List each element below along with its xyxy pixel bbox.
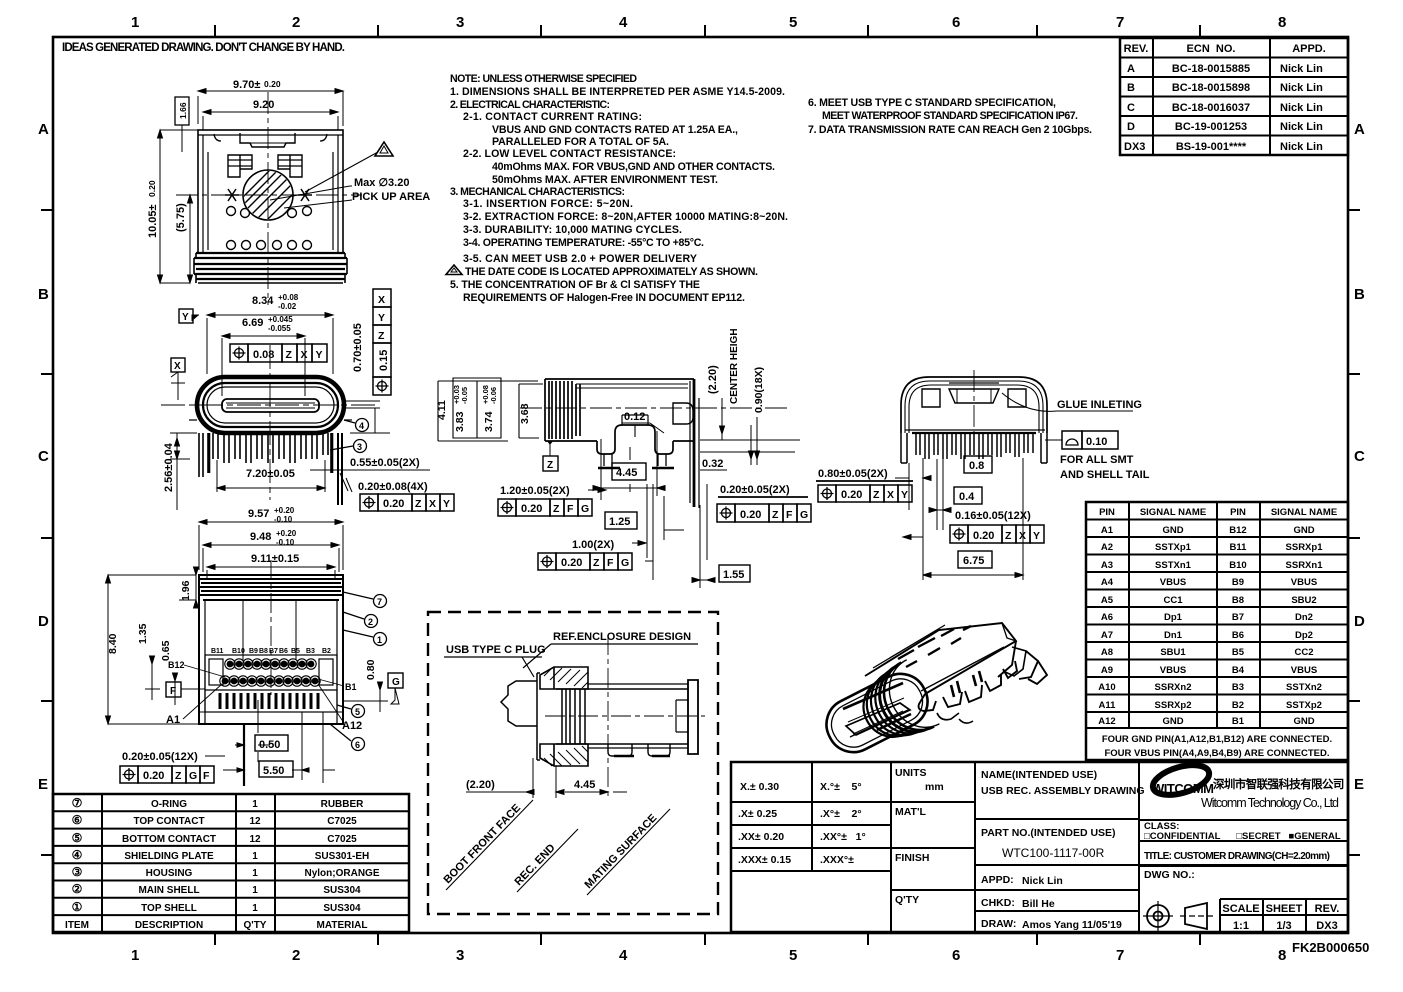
svg-text:0.20: 0.20: [264, 79, 281, 89]
svg-text:VBUS AND GND CONTACTS RATED AT: VBUS AND GND CONTACTS RATED AT 1.25A EA.…: [492, 124, 738, 136]
svg-text:B10: B10: [232, 648, 245, 655]
svg-text:0.20: 0.20: [561, 557, 582, 569]
svg-text:⑦: ⑦: [72, 796, 83, 810]
svg-text:A: A: [1354, 121, 1365, 138]
svg-text:.XXX± 0.15: .XXX± 0.15: [738, 854, 791, 866]
svg-text:9.20: 9.20: [253, 99, 274, 111]
svg-text:B8: B8: [259, 648, 268, 655]
svg-text:GND: GND: [1162, 525, 1183, 536]
svg-text:X: X: [887, 489, 894, 501]
svg-text:F: F: [567, 503, 574, 515]
svg-text:SBU2: SBU2: [1291, 595, 1316, 606]
svg-text:0.90(18X): 0.90(18X): [753, 367, 765, 413]
svg-text:MAIN SHELL: MAIN SHELL: [138, 885, 199, 896]
svg-text:NAME(INTENDED USE): NAME(INTENDED USE): [981, 769, 1097, 781]
svg-text:50mOhms MAX. AFTER ENVIRONMENT: 50mOhms MAX. AFTER ENVIRONMENT TEST.: [492, 174, 718, 186]
svg-text:B2: B2: [1232, 700, 1244, 711]
svg-text:0.70±0.05: 0.70±0.05: [352, 323, 364, 372]
svg-text:SBU1: SBU1: [1160, 647, 1186, 658]
svg-text:Z: Z: [772, 509, 779, 521]
svg-text:ECN NO.: ECN NO.: [1187, 43, 1236, 55]
svg-text:A4: A4: [1101, 577, 1114, 588]
svg-text:B9: B9: [249, 648, 258, 655]
svg-text:Y: Y: [1033, 530, 1040, 542]
svg-text:4: 4: [619, 947, 628, 964]
svg-text:A6: A6: [1101, 612, 1113, 623]
svg-text:8: 8: [1278, 14, 1286, 31]
svg-text:2-2. LOW LEVEL CONTACT RESISTA: 2-2. LOW LEVEL CONTACT RESISTANCE:: [463, 148, 676, 160]
svg-text:Z: Z: [415, 498, 422, 510]
svg-text:+0.20: +0.20: [276, 529, 297, 538]
svg-text:B11: B11: [211, 648, 224, 655]
svg-text:C: C: [1127, 102, 1135, 114]
svg-text:SHIELDING PLATE: SHIELDING PLATE: [124, 851, 214, 862]
svg-text:Dn2: Dn2: [1295, 612, 1313, 623]
svg-text:-0.06: -0.06: [489, 387, 498, 404]
svg-text:③: ③: [72, 865, 83, 879]
svg-text:BC-18-0016037: BC-18-0016037: [1172, 102, 1250, 114]
svg-text:CENTER HEIGH: CENTER HEIGH: [729, 328, 740, 404]
svg-text:FK2B000650: FK2B000650: [1292, 940, 1369, 955]
svg-text:0.20: 0.20: [740, 509, 761, 521]
svg-text:TOP CONTACT: TOP CONTACT: [133, 816, 204, 827]
svg-text:1: 1: [252, 903, 258, 914]
svg-text:3-2. EXTRACTION FORCE: 8~20N,A: 3-2. EXTRACTION FORCE: 8~20N,AFTER 10000…: [463, 211, 788, 223]
svg-text:1/3: 1/3: [1276, 920, 1291, 932]
svg-text:GND: GND: [1293, 525, 1314, 536]
svg-text:8.34: 8.34: [252, 295, 274, 307]
svg-text:10.05±: 10.05±: [147, 204, 159, 238]
svg-text:B5: B5: [291, 648, 300, 655]
svg-text:SHEET: SHEET: [1266, 903, 1303, 915]
svg-text:AND SHELL TAIL: AND SHELL TAIL: [1060, 469, 1150, 481]
svg-text:PIN: PIN: [1099, 507, 1115, 518]
svg-text:C: C: [1354, 448, 1365, 465]
svg-text:E: E: [1354, 776, 1364, 793]
svg-text:3.74: 3.74: [483, 411, 495, 432]
svg-text:12: 12: [249, 816, 261, 827]
svg-text:9.57: 9.57: [248, 508, 269, 520]
svg-text:9.70±: 9.70±: [233, 79, 260, 91]
svg-text:FINISH: FINISH: [895, 852, 929, 864]
svg-text:X: X: [174, 361, 181, 372]
svg-text:X: X: [301, 349, 308, 361]
svg-text:CC2: CC2: [1294, 647, 1313, 658]
svg-text:(2.20): (2.20): [707, 365, 719, 394]
svg-text:6: 6: [952, 947, 960, 964]
svg-text:B1: B1: [345, 682, 357, 692]
svg-text:7: 7: [1116, 14, 1124, 31]
svg-text:5.50: 5.50: [263, 765, 284, 777]
svg-text:0.80: 0.80: [365, 659, 377, 680]
svg-text:1: 1: [131, 947, 139, 964]
svg-text:1. DIMENSIONS SHALL BE INTERPR: 1. DIMENSIONS SHALL BE INTERPRETED PER A…: [450, 86, 785, 98]
svg-text:B6: B6: [1232, 630, 1244, 641]
svg-text:D: D: [1127, 121, 1135, 133]
svg-text:0.55±0.05(2X): 0.55±0.05(2X): [350, 457, 420, 469]
svg-text:9.48: 9.48: [250, 531, 271, 543]
svg-text:FOUR GND PIN(A1,A12,B1,B12) AR: FOUR GND PIN(A1,A12,B1,B12) ARE CONNECTE…: [1102, 734, 1332, 745]
svg-text:Z: Z: [378, 330, 385, 342]
svg-text:B1: B1: [1232, 716, 1245, 727]
svg-text:VBUS: VBUS: [1291, 665, 1317, 676]
svg-text:PIN: PIN: [1230, 507, 1246, 518]
svg-text:0.08: 0.08: [253, 349, 274, 361]
svg-text:SSTXn1: SSTXn1: [1155, 560, 1192, 571]
svg-text:A5: A5: [1101, 595, 1114, 606]
svg-text:5: 5: [355, 707, 360, 717]
svg-text:DWG NO.:: DWG NO.:: [1144, 869, 1195, 881]
svg-text:SSTXn2: SSTXn2: [1286, 682, 1322, 693]
svg-text:B7: B7: [269, 648, 278, 655]
svg-text:APPD.: APPD.: [1292, 43, 1326, 55]
svg-text:Witcomm Technology Co., Ltd: Witcomm Technology Co., Ltd: [1201, 796, 1339, 810]
svg-text:.X± 0.25: .X± 0.25: [738, 808, 777, 820]
svg-text:A12: A12: [342, 720, 362, 732]
svg-text:A: A: [1127, 63, 1135, 75]
svg-text:Z: Z: [553, 503, 560, 515]
svg-text:6. MEET USB TYPE C STANDARD SP: 6. MEET USB TYPE C STANDARD SPECIFICATIO…: [808, 97, 1056, 109]
svg-text:X: X: [1019, 530, 1026, 542]
svg-text:BC-19-001253: BC-19-001253: [1175, 121, 1247, 133]
svg-text:O-RING: O-RING: [151, 799, 187, 810]
svg-text:SCALE: SCALE: [1222, 903, 1259, 915]
svg-text:Nylon;ORANGE: Nylon;ORANGE: [305, 868, 380, 879]
svg-text:3.83: 3.83: [454, 411, 466, 432]
svg-text:-0.055: -0.055: [268, 324, 291, 333]
svg-text:-0.02: -0.02: [278, 302, 297, 311]
svg-text:4.45: 4.45: [574, 779, 595, 791]
svg-text:3: 3: [456, 14, 464, 31]
svg-text:B10: B10: [1229, 560, 1246, 571]
svg-text:X: X: [429, 498, 436, 510]
svg-text:⑥: ⑥: [72, 813, 83, 827]
svg-text:1.35: 1.35: [137, 623, 149, 644]
svg-text:①: ①: [72, 900, 83, 914]
svg-text:Nick Lin: Nick Lin: [1022, 875, 1063, 887]
svg-text:F: F: [170, 686, 176, 697]
svg-text:PARALLELED FOR A TOTAL OF 5A.: PARALLELED FOR A TOTAL OF 5A.: [492, 136, 669, 148]
svg-text:Q'TY: Q'TY: [895, 894, 919, 906]
svg-text:-0.10: -0.10: [276, 538, 295, 547]
svg-text:Bill He: Bill He: [1022, 898, 1055, 910]
svg-text:HOUSING: HOUSING: [146, 868, 193, 879]
svg-text:Y: Y: [901, 489, 908, 501]
svg-text:X: X: [378, 294, 385, 306]
svg-text:Z: Z: [593, 557, 600, 569]
svg-text:A11: A11: [1099, 700, 1117, 711]
svg-text:1: 1: [252, 799, 258, 810]
svg-text:B11: B11: [1230, 542, 1248, 553]
svg-text:+0.08: +0.08: [278, 293, 299, 302]
svg-text:2-1. CONTACT CURRENT RATING:: 2-1. CONTACT CURRENT RATING:: [463, 111, 642, 123]
svg-text:Q'TY: Q'TY: [244, 920, 267, 931]
svg-text:VBUS: VBUS: [1160, 665, 1186, 676]
svg-text:.XXX°±: .XXX°±: [820, 854, 854, 866]
svg-text:②: ②: [72, 882, 83, 896]
svg-text:0.4: 0.4: [959, 491, 975, 503]
svg-text:REF.ENCLOSURE DESIGN: REF.ENCLOSURE DESIGN: [553, 631, 691, 643]
svg-text:SSTXp2: SSTXp2: [1286, 700, 1322, 711]
svg-text:E: E: [38, 776, 48, 793]
svg-text:VBUS: VBUS: [1291, 577, 1317, 588]
svg-text:0.10: 0.10: [1086, 436, 1107, 448]
svg-text:1: 1: [252, 851, 258, 862]
svg-text:+0.045: +0.045: [268, 315, 293, 324]
svg-text:4.45: 4.45: [616, 467, 637, 479]
svg-text:D: D: [38, 613, 49, 630]
svg-text:CHKD:: CHKD:: [981, 897, 1015, 909]
svg-text:SUS304: SUS304: [323, 903, 361, 914]
svg-text:A: A: [38, 121, 49, 138]
svg-text:Nick Lin: Nick Lin: [1280, 63, 1323, 75]
svg-text:BC-18-0015885: BC-18-0015885: [1172, 63, 1250, 75]
svg-text:.XX± 0.20: .XX± 0.20: [738, 831, 784, 843]
svg-text:+0.20: +0.20: [274, 506, 295, 515]
svg-text:DX3: DX3: [1316, 920, 1337, 932]
svg-text:2: 2: [292, 947, 300, 964]
svg-text:0.20: 0.20: [973, 530, 994, 542]
svg-text:B8: B8: [1232, 595, 1244, 606]
svg-text:1.20±0.05(2X): 1.20±0.05(2X): [500, 485, 570, 497]
svg-text:B12: B12: [1229, 525, 1246, 536]
svg-text:B2: B2: [322, 648, 331, 655]
svg-text:-0.10: -0.10: [274, 515, 293, 524]
svg-text:1.96: 1.96: [180, 580, 192, 601]
svg-text:G: G: [392, 677, 400, 688]
svg-text:WITCOMM: WITCOMM: [1152, 781, 1213, 796]
svg-text:1.25: 1.25: [609, 516, 630, 528]
svg-text:B3: B3: [1232, 682, 1244, 693]
svg-text:TITLE: CUSTOMER DRAWING(CH=2.2: TITLE: CUSTOMER DRAWING(CH=2.20mm): [1144, 851, 1330, 862]
svg-text:0.20: 0.20: [521, 503, 542, 515]
svg-text:B9: B9: [1232, 577, 1244, 588]
svg-text:0.8: 0.8: [969, 460, 984, 472]
svg-text:PICK UP AREA: PICK UP AREA: [352, 191, 430, 203]
svg-text:VBUS: VBUS: [1160, 577, 1186, 588]
svg-text:④: ④: [72, 848, 83, 862]
svg-text:REV.: REV.: [1315, 903, 1340, 915]
svg-text:6: 6: [952, 14, 960, 31]
svg-text:PART NO.(INTENDED USE): PART NO.(INTENDED USE): [981, 827, 1116, 839]
svg-text:(5.75): (5.75): [175, 203, 187, 232]
svg-text:SUS304: SUS304: [323, 885, 361, 896]
svg-text:RUBBER: RUBBER: [321, 799, 365, 810]
svg-text:1: 1: [252, 868, 258, 879]
svg-text:A7: A7: [1101, 630, 1113, 641]
svg-text:MATERIAL: MATERIAL: [317, 920, 368, 931]
svg-text:Amos Yang 11/05'19: Amos Yang 11/05'19: [1022, 919, 1122, 931]
svg-text:GLUE INLETING: GLUE INLETING: [1057, 399, 1142, 411]
svg-text:3-3. DURABILITY: 10,000 MATING: 3-3. DURABILITY: 10,000 MATING CYCLES.: [463, 224, 682, 236]
svg-text:D: D: [1354, 613, 1365, 630]
svg-text:A12: A12: [1098, 716, 1115, 727]
svg-text:0.20±0.05(2X): 0.20±0.05(2X): [720, 484, 790, 496]
svg-text:3-5. CAN MEET USB 2.0 + POWER: 3-5. CAN MEET USB 2.0 + POWER DELIVERY: [463, 253, 697, 265]
svg-text:BC-18-0015898: BC-18-0015898: [1172, 82, 1250, 94]
svg-text:.XX°± 1°: .XX°± 1°: [820, 831, 866, 843]
svg-text:12: 12: [249, 834, 261, 845]
svg-text:2.56±0.04: 2.56±0.04: [163, 442, 175, 492]
svg-text:Nick Lin: Nick Lin: [1280, 121, 1323, 133]
svg-text:0.20: 0.20: [143, 770, 164, 782]
svg-text:G: G: [581, 503, 589, 515]
svg-text:Max ∅3.20: Max ∅3.20: [354, 177, 409, 189]
svg-text:ITEM: ITEM: [65, 920, 89, 931]
svg-text:BS-19-001****: BS-19-001****: [1176, 141, 1247, 153]
svg-text:IDEAS GENERATED DRAWING. DON'T: IDEAS GENERATED DRAWING. DON'T CHANGE BY…: [62, 42, 345, 54]
svg-text:9.11±0.15: 9.11±0.15: [251, 553, 299, 565]
svg-text:5: 5: [789, 947, 797, 964]
svg-text:B: B: [1354, 286, 1365, 303]
svg-text:THE DATE CODE IS LOCATED APPRO: THE DATE CODE IS LOCATED APPROXIMATELY A…: [465, 266, 758, 278]
svg-text:A1: A1: [1101, 525, 1114, 536]
svg-text:6.69: 6.69: [242, 317, 263, 329]
svg-text:B7: B7: [1232, 612, 1244, 623]
svg-text:B4: B4: [1232, 665, 1245, 676]
svg-text:Y: Y: [182, 312, 189, 323]
svg-text:X.°± 5°: X.°± 5°: [820, 781, 862, 793]
svg-text:8: 8: [1278, 947, 1286, 964]
svg-text:1: 1: [252, 885, 258, 896]
svg-text:SSTXp1: SSTXp1: [1155, 542, 1192, 553]
svg-text:F: F: [203, 770, 210, 782]
svg-text:SSRXn1: SSRXn1: [1286, 560, 1324, 571]
svg-text:0.20±0.08(4X): 0.20±0.08(4X): [358, 481, 428, 493]
svg-text:Z: Z: [286, 349, 293, 361]
svg-text:4: 4: [619, 14, 628, 31]
svg-text:SSRXp1: SSRXp1: [1286, 542, 1324, 553]
svg-text:3.68: 3.68: [519, 403, 531, 424]
svg-text:Z: Z: [547, 460, 553, 471]
svg-text:APPD:: APPD:: [981, 874, 1014, 886]
svg-text:Z: Z: [1005, 530, 1012, 542]
svg-text:F: F: [607, 557, 614, 569]
svg-text:7: 7: [1116, 947, 1124, 964]
svg-text:G: G: [800, 509, 808, 521]
svg-text:MAT'L: MAT'L: [895, 806, 926, 818]
svg-text:0.20: 0.20: [841, 489, 862, 501]
svg-text:UNITS: UNITS: [895, 767, 927, 779]
svg-text:0.20: 0.20: [383, 498, 404, 510]
svg-text:1:1: 1:1: [1233, 920, 1249, 932]
svg-text:-0.05: -0.05: [460, 387, 469, 404]
svg-text:WTC100-1117-00R: WTC100-1117-00R: [1002, 846, 1105, 860]
svg-text:3. MECHANICAL CHARACTERISTICS:: 3. MECHANICAL CHARACTERISTICS:: [450, 186, 625, 198]
svg-text:C7025: C7025: [327, 834, 357, 845]
svg-text:A3: A3: [1101, 560, 1113, 571]
svg-text:0.12: 0.12: [624, 411, 645, 423]
svg-text:FOUR VBUS PIN(A4,A9,B4,B9) ARE: FOUR VBUS PIN(A4,A9,B4,B9) ARE CONNECTED…: [1104, 748, 1329, 759]
svg-text:TOP SHELL: TOP SHELL: [141, 903, 197, 914]
svg-text:0.20: 0.20: [147, 180, 157, 197]
svg-text:DESCRIPTION: DESCRIPTION: [135, 920, 203, 931]
svg-text:1.00(2X): 1.00(2X): [572, 539, 615, 551]
svg-text:Y: Y: [443, 498, 450, 510]
svg-text:⑤: ⑤: [72, 831, 83, 845]
svg-text:Z: Z: [873, 489, 880, 501]
svg-text:6: 6: [355, 740, 360, 750]
svg-text:40mOhms MAX. FOR VBUS,GND AND: 40mOhms MAX. FOR VBUS,GND AND OTHER CONT…: [492, 161, 775, 173]
svg-text:0.16±0.05(12X): 0.16±0.05(12X): [955, 510, 1031, 522]
svg-text:2: 2: [368, 617, 373, 627]
svg-text:1: 1: [377, 635, 382, 645]
svg-text:B3: B3: [306, 648, 315, 655]
svg-text:Nick Lin: Nick Lin: [1280, 82, 1323, 94]
svg-text:0.50: 0.50: [259, 739, 280, 751]
svg-text:2: 2: [292, 14, 300, 31]
svg-text:mm: mm: [925, 781, 944, 793]
svg-text:A2: A2: [1101, 542, 1113, 553]
svg-text:SIGNAL NAME: SIGNAL NAME: [1140, 507, 1206, 518]
svg-text:B: B: [1127, 82, 1135, 94]
svg-text:3: 3: [357, 442, 362, 452]
svg-text:1: 1: [131, 14, 139, 31]
svg-text:4: 4: [359, 421, 364, 431]
svg-text:B6: B6: [279, 648, 288, 655]
svg-text:6.75: 6.75: [963, 555, 984, 567]
svg-text:Dp1: Dp1: [1164, 612, 1183, 623]
svg-text:Dp2: Dp2: [1295, 630, 1313, 641]
svg-text:X.± 0.30: X.± 0.30: [740, 781, 779, 793]
svg-text:G: G: [621, 557, 629, 569]
svg-text:MEET WATERPROOF STANDARD SPECI: MEET WATERPROOF STANDARD SPECIFICATION I…: [822, 110, 1078, 122]
svg-text:.X°± 2°: .X°± 2°: [820, 808, 862, 820]
svg-text:Y: Y: [316, 349, 323, 361]
svg-text:5: 5: [789, 14, 797, 31]
svg-text:USB TYPE C PLUG: USB TYPE C PLUG: [446, 644, 546, 656]
svg-text:0.15: 0.15: [378, 350, 390, 371]
svg-text:REV.: REV.: [1124, 43, 1149, 55]
svg-text:7.20±0.05: 7.20±0.05: [246, 468, 295, 480]
svg-text:A9: A9: [1101, 665, 1113, 676]
svg-text:深圳市智联强科技有限公司: 深圳市智联强科技有限公司: [1213, 777, 1344, 791]
svg-text:0.80±0.05(2X): 0.80±0.05(2X): [818, 468, 888, 480]
svg-text:A8: A8: [1101, 647, 1113, 658]
svg-text:B5: B5: [1232, 647, 1245, 658]
svg-text:7: 7: [377, 597, 382, 607]
svg-text:SUS301-EH: SUS301-EH: [315, 851, 369, 862]
svg-text:BOTTOM CONTACT: BOTTOM CONTACT: [122, 834, 216, 845]
svg-text:0.32: 0.32: [702, 458, 723, 470]
svg-text:REQUIREMENTS OF Halogen-Free I: REQUIREMENTS OF Halogen-Free IN DOCUMENT…: [463, 292, 745, 304]
svg-text:1.55: 1.55: [723, 569, 744, 581]
svg-text:DRAW:: DRAW:: [981, 918, 1016, 930]
svg-text:USB REC. ASSEMBLY DRAWING: USB REC. ASSEMBLY DRAWING: [981, 785, 1145, 797]
svg-text:Z: Z: [175, 770, 182, 782]
svg-text:FOR ALL SMT: FOR ALL SMT: [1060, 454, 1134, 466]
svg-text:3: 3: [456, 947, 464, 964]
svg-text:2. ELECTRICAL CHARACTERISTIC:: 2. ELECTRICAL CHARACTERISTIC:: [450, 99, 610, 111]
svg-text:DX3: DX3: [1124, 141, 1145, 153]
svg-text:5. THE CONCENTRATION OF Br & C: 5. THE CONCENTRATION OF Br & Cl SATISFY …: [450, 279, 700, 291]
svg-text:C7025: C7025: [327, 816, 357, 827]
svg-text:Dn1: Dn1: [1164, 630, 1183, 641]
svg-text:SIGNAL NAME: SIGNAL NAME: [1271, 507, 1337, 518]
svg-text:0.65: 0.65: [160, 640, 172, 661]
svg-text:CC1: CC1: [1163, 595, 1183, 606]
svg-text:F: F: [786, 509, 793, 521]
svg-text:A10: A10: [1098, 682, 1115, 693]
svg-text:7. DATA TRANSMISSION RATE CAN: 7. DATA TRANSMISSION RATE CAN REACH Gen …: [808, 124, 1092, 136]
svg-text:8.40: 8.40: [107, 633, 119, 654]
svg-text:3-1. INSERTION FORCE: 5~20N.: 3-1. INSERTION FORCE: 5~20N.: [463, 198, 633, 210]
svg-text:GND: GND: [1162, 716, 1183, 727]
svg-text:NOTE: UNLESS OTHERWISE SPECIFI: NOTE: UNLESS OTHERWISE SPECIFIED: [450, 73, 637, 85]
svg-text:G: G: [189, 770, 197, 782]
svg-text:0.20±0.05(12X): 0.20±0.05(12X): [122, 751, 198, 763]
svg-text:SSRXp2: SSRXp2: [1155, 700, 1192, 711]
